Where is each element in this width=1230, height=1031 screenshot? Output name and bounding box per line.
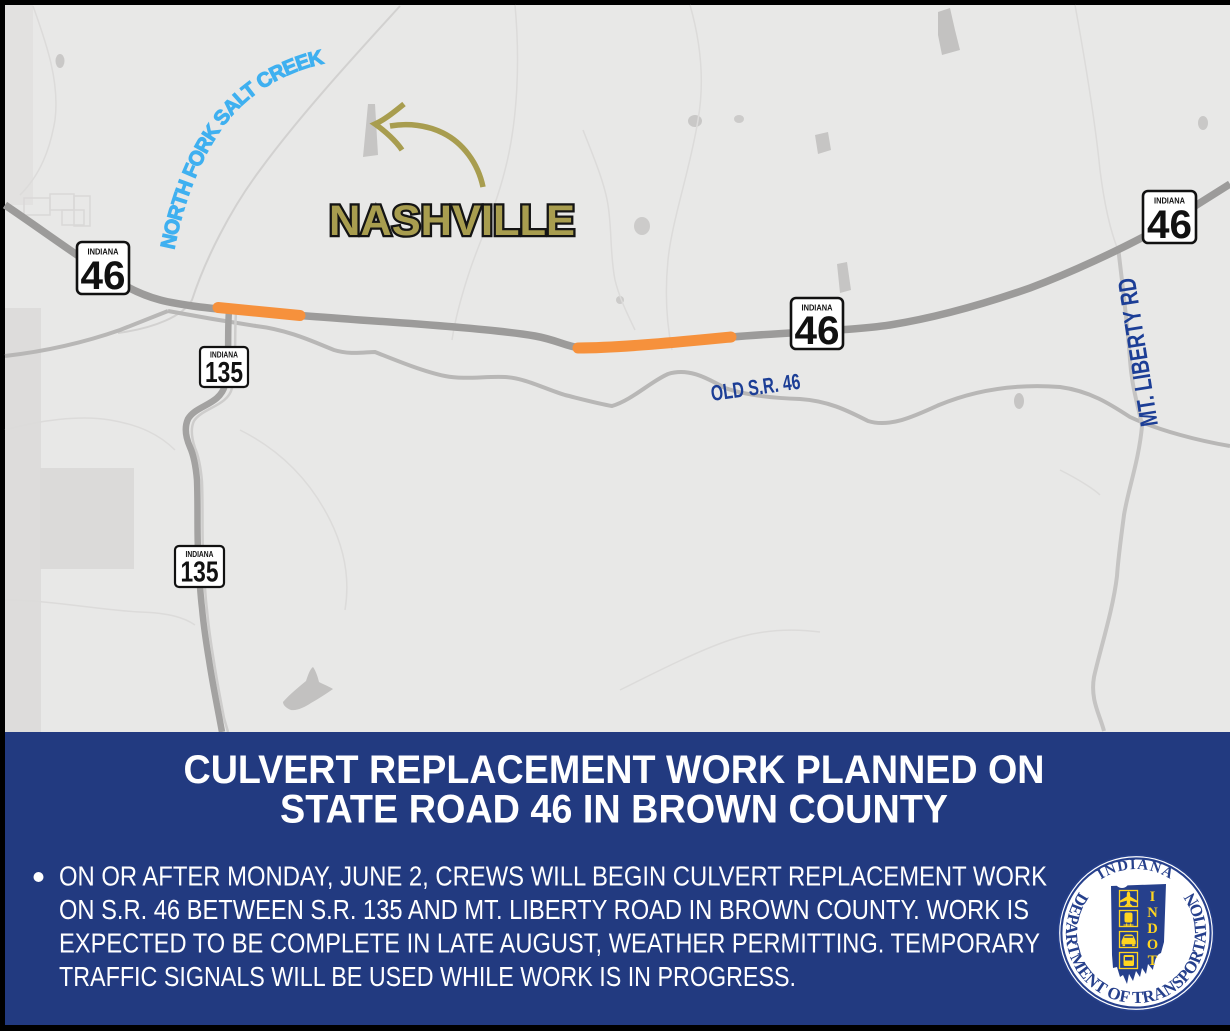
svg-text:I: I <box>1150 889 1156 905</box>
svg-text:EXPECTED TO BE COMPLETE IN LAT: EXPECTED TO BE COMPLETE IN LATE AUGUST, … <box>59 928 1040 959</box>
svg-text:135: 135 <box>181 557 219 589</box>
svg-text:NASHVILLE: NASHVILLE <box>329 197 575 245</box>
svg-text:N: N <box>1147 905 1158 921</box>
svg-text:O: O <box>1147 937 1158 953</box>
svg-text:46: 46 <box>795 309 840 353</box>
svg-text:CULVERT REPLACEMENT WORK PLANN: CULVERT REPLACEMENT WORK PLANNED ON <box>184 748 1045 792</box>
svg-text:135: 135 <box>205 357 243 389</box>
svg-text:D: D <box>1147 921 1157 937</box>
svg-text:46: 46 <box>81 254 126 298</box>
svg-text:TRAFFIC SIGNALS WILL BE USED W: TRAFFIC SIGNALS WILL BE USED WHILE WORK … <box>59 961 796 992</box>
svg-text:STATE ROAD 46 IN BROWN COUNTY: STATE ROAD 46 IN BROWN COUNTY <box>280 788 948 832</box>
svg-text:ON OR AFTER MONDAY, JUNE 2, CR: ON OR AFTER MONDAY, JUNE 2, CREWS WILL B… <box>59 861 1047 892</box>
svg-text:T: T <box>1148 953 1158 969</box>
svg-text:ON S.R. 46 BETWEEN S.R. 135 AN: ON S.R. 46 BETWEEN S.R. 135 AND MT. LIBE… <box>59 894 1029 925</box>
svg-text:46: 46 <box>1147 203 1192 247</box>
